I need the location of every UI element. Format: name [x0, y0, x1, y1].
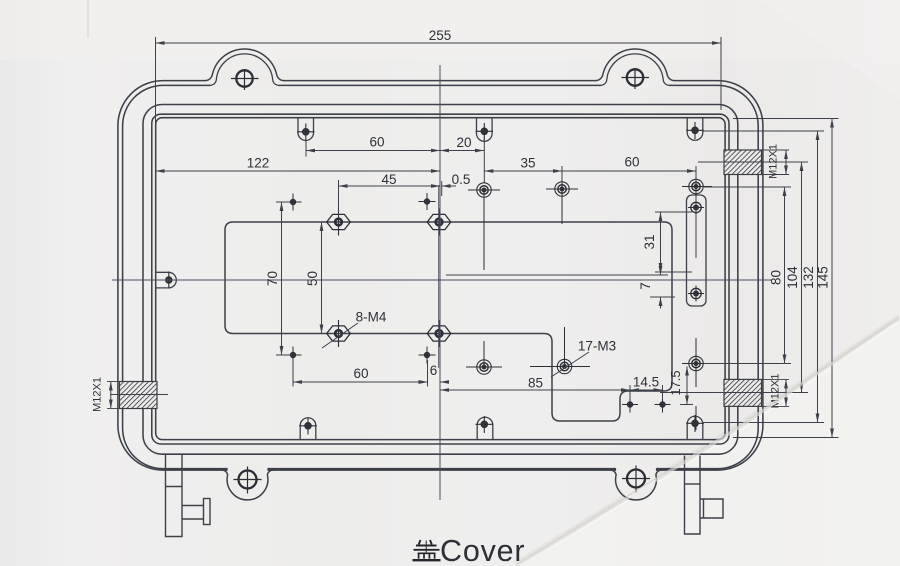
svg-text:Cover: Cover — [440, 534, 525, 566]
svg-text:45: 45 — [381, 172, 396, 187]
svg-text:132: 132 — [801, 266, 816, 289]
svg-text:7: 7 — [638, 282, 653, 290]
svg-text:M12X1: M12X1 — [92, 377, 104, 412]
svg-text:31: 31 — [642, 234, 657, 249]
svg-text:60: 60 — [369, 135, 384, 150]
svg-text:14.5: 14.5 — [633, 375, 659, 390]
svg-text:50: 50 — [305, 271, 320, 286]
svg-text:104: 104 — [785, 266, 800, 289]
svg-text:122: 122 — [247, 156, 270, 171]
svg-text:M12X1: M12X1 — [768, 144, 780, 179]
svg-text:0.5: 0.5 — [452, 172, 471, 187]
svg-text:17.5: 17.5 — [668, 370, 683, 395]
svg-text:60: 60 — [353, 366, 368, 381]
svg-text:70: 70 — [265, 271, 280, 286]
svg-text:60: 60 — [624, 155, 639, 170]
svg-text:145: 145 — [816, 266, 831, 289]
svg-text:85: 85 — [528, 376, 543, 391]
svg-text:17-M3: 17-M3 — [578, 339, 616, 354]
svg-text:80: 80 — [769, 270, 784, 285]
svg-text:35: 35 — [520, 156, 535, 171]
svg-text:20: 20 — [456, 135, 471, 150]
svg-text:6: 6 — [430, 363, 438, 378]
svg-text:8-M4: 8-M4 — [356, 310, 387, 325]
svg-text:255: 255 — [429, 28, 452, 43]
